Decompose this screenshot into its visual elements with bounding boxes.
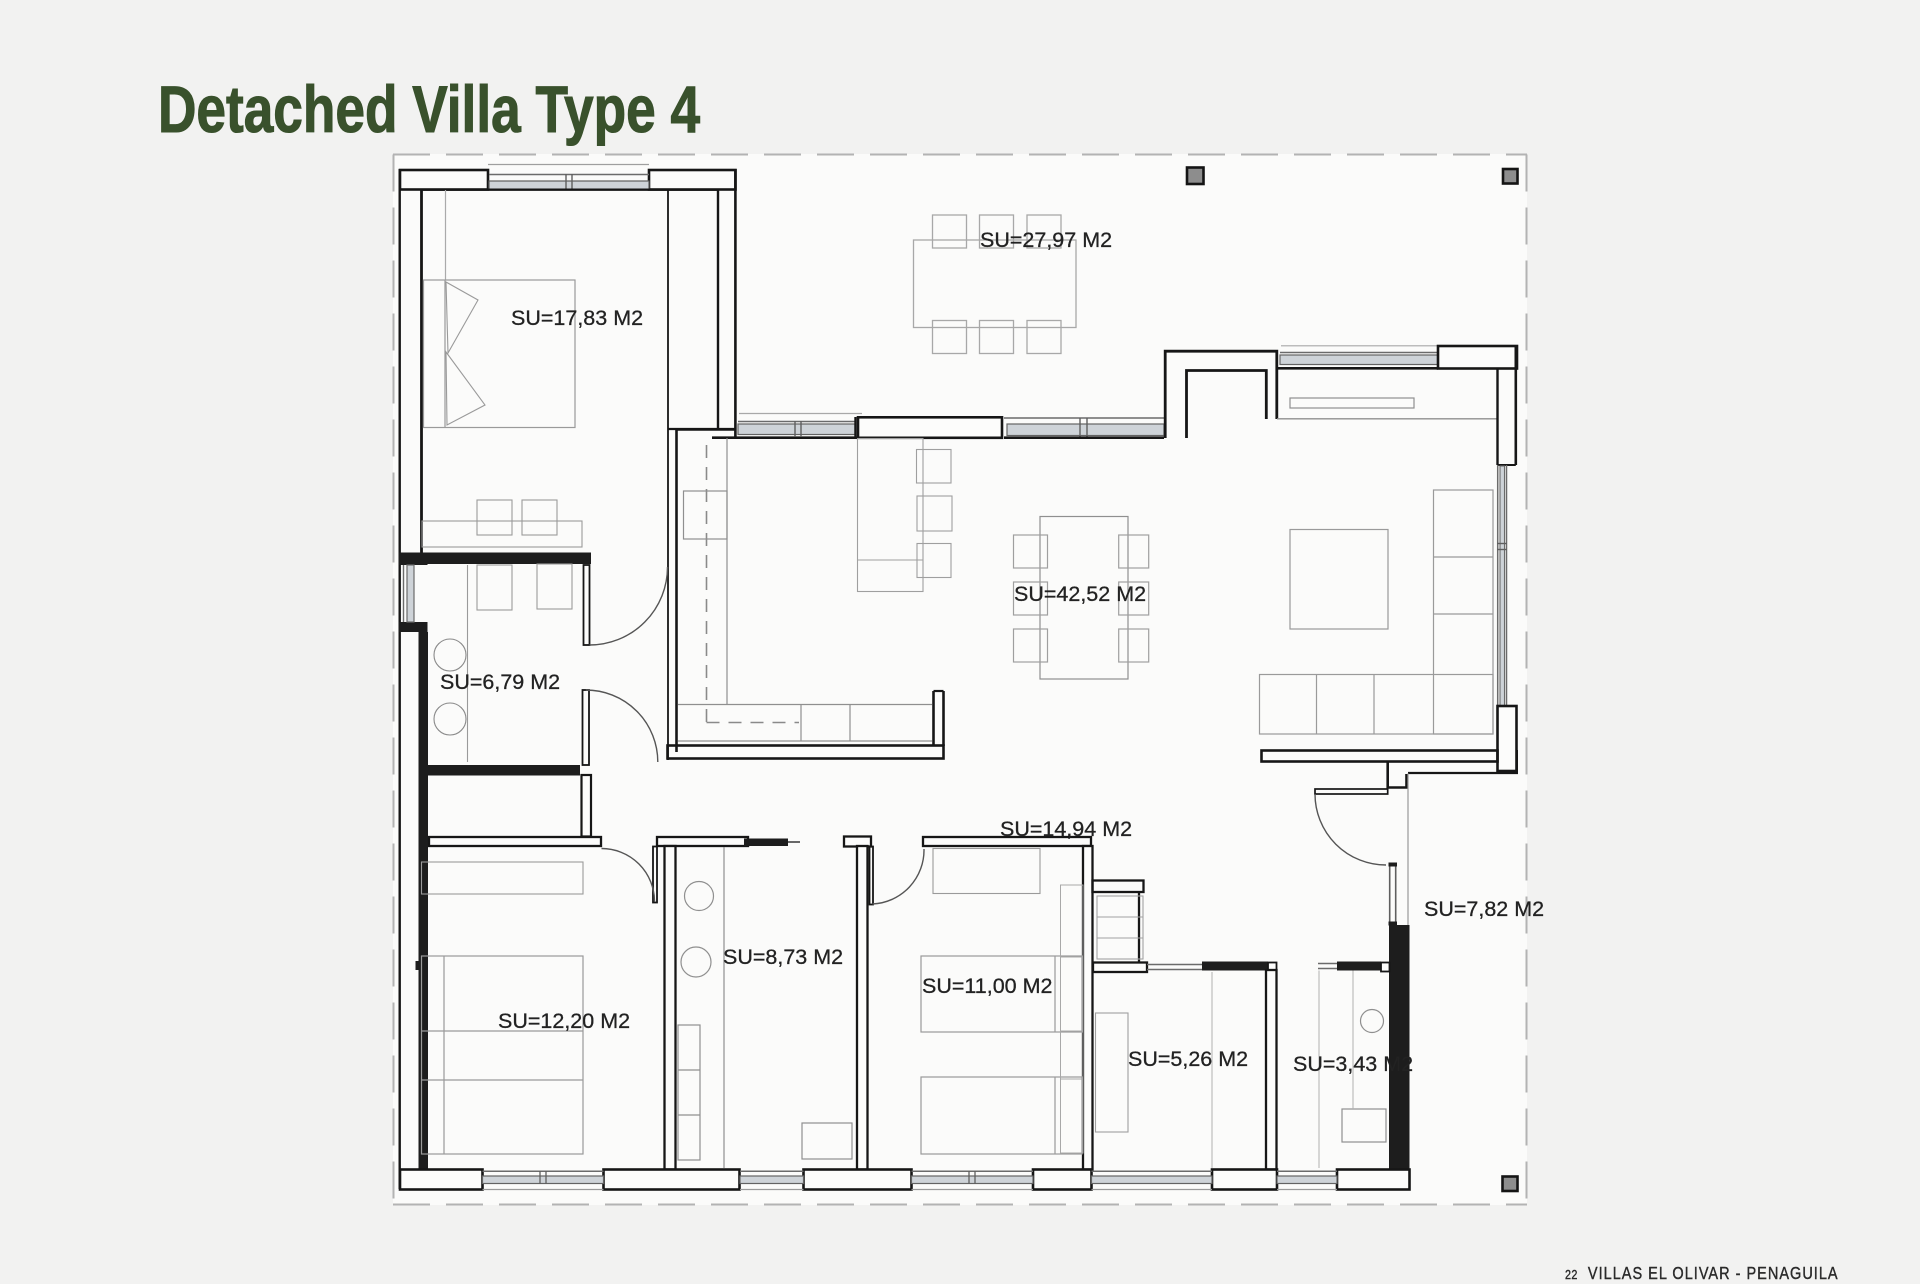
svg-text:SU=6,79 M2: SU=6,79 M2 (440, 670, 560, 694)
svg-text:SU=7,82 M2: SU=7,82 M2 (1424, 897, 1544, 921)
svg-text:SU=11,00 M2: SU=11,00 M2 (922, 974, 1052, 998)
svg-text:SU=3,43 M2: SU=3,43 M2 (1293, 1052, 1413, 1076)
svg-text:SU=5,26 M2: SU=5,26 M2 (1128, 1047, 1248, 1071)
svg-text:SU=12,20 M2: SU=12,20 M2 (498, 1009, 630, 1033)
svg-text:SU=8,73 M2: SU=8,73 M2 (723, 945, 843, 969)
svg-text:SU=27,97 M2: SU=27,97 M2 (980, 228, 1112, 252)
svg-text:SU=17,83 M2: SU=17,83 M2 (511, 306, 643, 330)
svg-text:SU=14,94 M2: SU=14,94 M2 (1000, 817, 1132, 841)
svg-text:SU=42,52 M2: SU=42,52 M2 (1014, 582, 1146, 606)
